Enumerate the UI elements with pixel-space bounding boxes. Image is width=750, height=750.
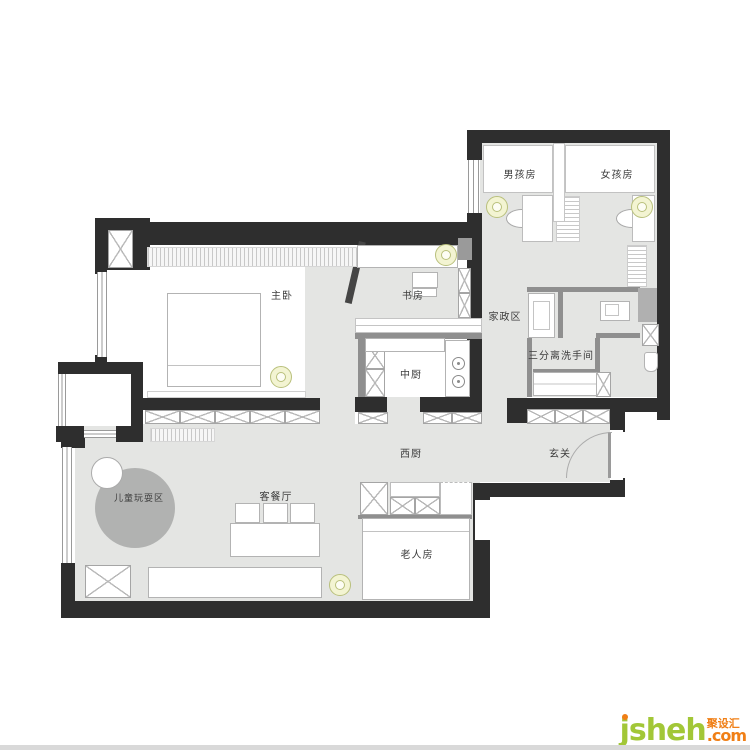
- column-box-bath-small: [596, 372, 611, 397]
- label-bathroom: 三分离洗手间: [521, 351, 601, 363]
- dining-chair-1: [235, 503, 260, 523]
- bathroom-wall-washer-right: [558, 292, 563, 338]
- play-stool: [91, 457, 123, 489]
- kitchen-cabinet-right-2: [452, 412, 482, 424]
- master-cabinet-4: [250, 410, 285, 424]
- boys-wardrobe: [522, 195, 553, 242]
- master-bed: [167, 293, 261, 387]
- bathroom-sink-basin: [605, 304, 619, 316]
- label-chinese-kitchen: 中厨: [391, 370, 431, 382]
- entry-shoe-cabinet-2: [555, 409, 583, 424]
- kitchen-cabinet-right-1: [423, 412, 452, 424]
- ceiling-light-icon-study: [435, 244, 457, 266]
- label-western-kitchen: 西厨: [391, 449, 431, 461]
- balcony-bottom-window: [84, 430, 116, 438]
- girls-bed: [565, 145, 655, 193]
- wall-top: [150, 222, 470, 245]
- stove-burner-1: [452, 357, 465, 370]
- master-tv-console: [147, 391, 306, 398]
- wall-block-bottom-stub: [507, 398, 527, 423]
- elder-wardrobe-2: [415, 497, 440, 515]
- kitchen-top-counter: [365, 338, 445, 352]
- elder-cabinet-plain: [440, 482, 472, 515]
- kitchen-counter-left-2: [365, 369, 385, 397]
- balcony-left-window: [58, 374, 66, 426]
- boys-room-window: [468, 160, 479, 213]
- watermark-suffix: 聚设汇 .com: [707, 718, 746, 743]
- floor-plan: 主卧 书房 男孩房 女孩房 家政区 三分离洗手间 中厨 西厨 玄关 客餐厅 儿童…: [0, 0, 750, 750]
- wall-block-right: [657, 130, 670, 420]
- stove-burner-2: [452, 375, 465, 388]
- kids-partition: [553, 143, 565, 222]
- wall-block-top: [467, 130, 670, 143]
- master-cabinet-1: [145, 410, 180, 424]
- study-corner-column: [458, 238, 472, 260]
- bathroom-wall-top: [527, 287, 640, 292]
- west-kitchen-hatch: [150, 428, 215, 442]
- kitchen-cabinet-left: [358, 412, 388, 424]
- label-kids-play: 儿童玩耍区: [104, 493, 174, 505]
- toilet: [644, 352, 658, 372]
- kitchen-wall-left: [358, 339, 365, 397]
- study-cabinet-1: [458, 268, 471, 293]
- label-master-bedroom: 主卧: [262, 291, 302, 303]
- ceiling-light-icon-boys: [486, 196, 508, 218]
- study-cabinet-2: [458, 293, 471, 318]
- label-boys-room: 男孩房: [495, 170, 545, 182]
- master-cabinet-2: [180, 410, 215, 424]
- column-box-block-right: [642, 324, 659, 346]
- elder-door-gap: [475, 500, 490, 540]
- label-housekeeping: 家政区: [480, 312, 530, 324]
- watermark-tld-text: .com: [707, 729, 746, 743]
- wall-balcony-bottom-right: [116, 426, 143, 442]
- watermark-j-dot: [622, 714, 628, 720]
- label-entry: 玄关: [540, 449, 580, 461]
- wall-bottom: [61, 601, 490, 618]
- washing-machine-drum: [533, 301, 550, 330]
- wall-master-bottom: [140, 398, 320, 410]
- dining-chair-2: [263, 503, 288, 523]
- wall-entry-right-upper: [610, 412, 625, 432]
- elder-wardrobe-big: [360, 482, 388, 515]
- study-sliding-door-track: [355, 318, 482, 333]
- ceiling-light-icon-living: [329, 574, 351, 596]
- ceiling-light-icon-girls: [631, 196, 653, 218]
- girls-desk-ladder-hatch: [627, 245, 647, 287]
- boys-bed: [483, 145, 553, 193]
- wall-balcony-right: [131, 362, 143, 428]
- bathroom-niche: [638, 288, 657, 322]
- column-box-bottomleft: [85, 565, 131, 598]
- wall-kitchen-bottom-left: [355, 397, 387, 412]
- balcony-room: [66, 374, 131, 426]
- wall-entry-bottom: [481, 483, 625, 497]
- study-chair: [412, 272, 438, 288]
- master-cabinet-5: [285, 410, 320, 424]
- label-study: 书房: [393, 291, 433, 303]
- master-cabinet-3: [215, 410, 250, 424]
- ceiling-light-icon-master: [270, 366, 292, 388]
- label-girls-room: 女孩房: [592, 170, 642, 182]
- watermark-brand-text: jsheh: [620, 719, 706, 743]
- wall-kitchen-bottom-right: [420, 397, 482, 412]
- bedroom-door-gap-floor: [320, 398, 355, 424]
- entry-shoe-cabinet-1: [527, 409, 555, 424]
- master-curtain-wardrobe-hatch: [147, 247, 363, 267]
- dining-table: [230, 523, 320, 557]
- watermark-logo: jsheh 聚设汇 .com: [620, 718, 746, 743]
- elder-wardrobe-1: [390, 497, 415, 515]
- bathtub: [533, 372, 597, 396]
- column-box-topleft: [108, 230, 133, 268]
- living-left-window: [62, 447, 72, 563]
- bottom-edge-bar: [0, 745, 750, 750]
- kitchen-door-gap-floor: [385, 397, 423, 424]
- tv-bench: [148, 567, 322, 598]
- dining-chair-3: [290, 503, 315, 523]
- label-living-dining: 客餐厅: [251, 492, 301, 504]
- wall-balcony-top: [58, 362, 140, 374]
- bathroom-wall-sink-bottom: [596, 333, 640, 338]
- master-bedroom-window: [97, 272, 107, 357]
- entry-shoe-cabinet-3: [583, 409, 610, 424]
- label-elder-room: 老人房: [392, 550, 442, 562]
- elder-shelf: [390, 482, 440, 497]
- bathroom-wall-left: [527, 338, 532, 397]
